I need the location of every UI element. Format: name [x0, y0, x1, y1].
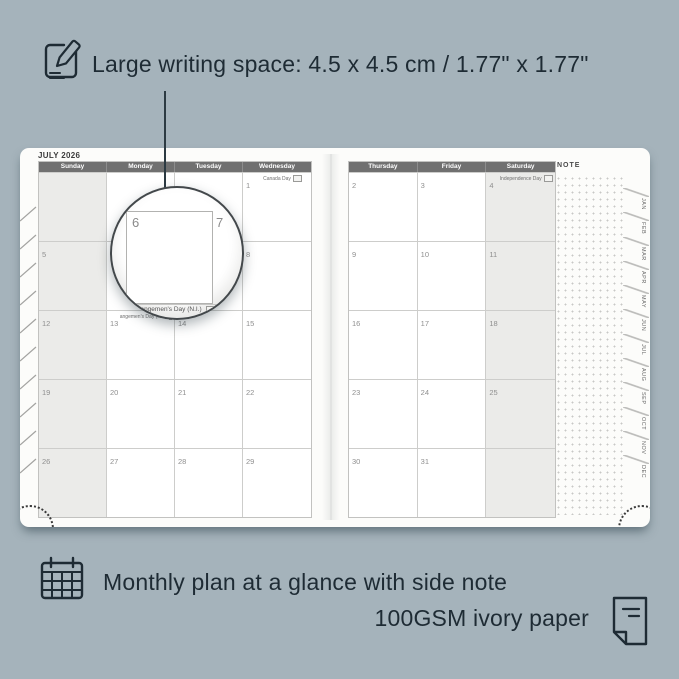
- calendar-cell: [486, 448, 555, 517]
- bottom-annotation-text-1: Monthly plan at a glance with side note: [103, 569, 507, 596]
- date-label: 3: [421, 181, 425, 190]
- calendar-cell: 18: [486, 310, 555, 379]
- date-label: 13: [110, 319, 118, 328]
- month-tab-label: MAY: [640, 295, 646, 308]
- date-label: 20: [110, 388, 118, 397]
- date-label: 8: [246, 250, 250, 259]
- calendar-cell: 2: [349, 172, 418, 241]
- page-gutter: [322, 154, 340, 520]
- date-label: 21: [178, 388, 186, 397]
- date-label: 10: [421, 250, 429, 259]
- month-title: JULY 2026: [38, 151, 80, 160]
- date-label: 31: [421, 457, 429, 466]
- day-header-row: ThursdayFridaySaturday: [349, 162, 555, 172]
- product-image: Large writing space: 4.5 x 4.5 cm / 1.77…: [0, 0, 679, 679]
- GB-flag-icon: [206, 306, 216, 313]
- calendar-cell: 28: [175, 448, 243, 517]
- calendar-cell: 5: [39, 241, 107, 310]
- month-tab-label: JUL: [640, 344, 646, 355]
- calendar-cell: 13Orangemen's Day (N.I.): [107, 310, 175, 379]
- calendar-cell: 25: [486, 379, 555, 448]
- month-tab-aug: AUG: [623, 358, 649, 382]
- calendar-cell: 26: [39, 448, 107, 517]
- calendar-cell: 20: [107, 379, 175, 448]
- planner-spread: JULY 2026 SundayMondayTuesdayWednesday1C…: [20, 148, 650, 527]
- magnifier-holiday-row: 13 Orangemen's Day (N.I.): [122, 306, 216, 313]
- date-label: 19: [42, 388, 50, 397]
- calendar-cell: [39, 172, 107, 241]
- date-label: 28: [178, 457, 186, 466]
- date-label: 25: [489, 388, 497, 397]
- calendar-cell: 23: [349, 379, 418, 448]
- date-label: 13: [122, 306, 129, 313]
- date-label: 15: [246, 319, 254, 328]
- calendar-cell: 24: [418, 379, 487, 448]
- date-label: 29: [246, 457, 254, 466]
- date-label: 16: [352, 319, 360, 328]
- month-tab-mar: MAR: [623, 237, 649, 261]
- day-header: Wednesday: [243, 162, 311, 172]
- calendar-cell: 11: [486, 241, 555, 310]
- month-tab-jul: JUL: [623, 334, 649, 358]
- day-header: Saturday: [486, 162, 555, 172]
- month-tab-may: MAY: [623, 285, 649, 309]
- month-tab-dec: DEC: [623, 455, 649, 479]
- calendar-grid-icon: [38, 556, 86, 602]
- month-tab-jan: JAN: [623, 188, 649, 212]
- calendar-cell: 22: [243, 379, 311, 448]
- date-label: 14: [178, 319, 186, 328]
- month-tab-label: APR: [640, 271, 646, 284]
- calendar-body: 234Independence Day 91011161718232425303…: [349, 172, 555, 517]
- note-dot-grid: [555, 175, 627, 515]
- grid-line: [112, 304, 242, 305]
- month-tab-label: NOV: [640, 441, 646, 454]
- date-label: 7: [216, 215, 223, 230]
- top-annotation-text: Large writing space: 4.5 x 4.5 cm / 1.77…: [92, 51, 589, 78]
- bottom-annotation-text-2: 100GSM ivory paper: [374, 605, 589, 632]
- holiday-label: Orangemen's Day (N.I.): [133, 306, 201, 313]
- calendar-cell: 31: [418, 448, 487, 517]
- pencil-note-icon: [40, 33, 84, 85]
- calendar-cell: 1Canada Day: [243, 172, 311, 241]
- calendar-cell: 4Independence Day: [486, 172, 555, 241]
- day-header: Sunday: [39, 162, 107, 172]
- calendar-cell: 12: [39, 310, 107, 379]
- holiday-label: Canada Day: [256, 175, 309, 182]
- US-flag-icon: [544, 175, 553, 182]
- date-label: 17: [421, 319, 429, 328]
- date-label: 23: [352, 388, 360, 397]
- month-tab-strip: JANFEBMARAPRMAYJUNJULAUGSEPOCTNOVDEC: [623, 188, 649, 480]
- month-tab-label: MAR: [640, 247, 646, 261]
- date-label: 27: [110, 457, 118, 466]
- date-label: 9: [352, 250, 356, 259]
- calendar-cell: 19: [39, 379, 107, 448]
- calendar-cell: 14: [175, 310, 243, 379]
- page-edge-hatch: [20, 203, 37, 483]
- calendar-right-page: ThursdayFridaySaturday234Independence Da…: [348, 161, 556, 518]
- pointer-line: [164, 91, 166, 188]
- month-tab-sep: SEP: [623, 382, 649, 406]
- month-tab-feb: FEB: [623, 212, 649, 236]
- paper-sheet-icon: [611, 595, 649, 647]
- calendar-cell: 21: [175, 379, 243, 448]
- month-tab-label: FEB: [640, 222, 646, 234]
- date-label: 12: [42, 319, 50, 328]
- date-label: 18: [489, 319, 497, 328]
- day-header: Thursday: [349, 162, 418, 172]
- date-label: 26: [42, 457, 50, 466]
- date-label: 6: [132, 215, 139, 230]
- month-tab-label: OCT: [640, 417, 646, 430]
- date-label: 11: [489, 250, 497, 259]
- date-label: 30: [352, 457, 360, 466]
- calendar-cell: 3: [418, 172, 487, 241]
- month-tab-label: JAN: [640, 198, 646, 210]
- note-label: NOTE: [557, 162, 580, 169]
- calendar-cell: 29: [243, 448, 311, 517]
- month-tab-label: DEC: [640, 465, 646, 478]
- date-label: 4: [489, 181, 493, 190]
- month-tab-label: SEP: [640, 392, 646, 405]
- month-tab-oct: OCT: [623, 407, 649, 431]
- calendar-cell: 9: [349, 241, 418, 310]
- date-label: 1: [246, 181, 250, 190]
- magnifier-circle: 6 7 13 Orangemen's Day (N.I.): [110, 186, 244, 320]
- date-label: 24: [421, 388, 429, 397]
- day-header: Friday: [418, 162, 487, 172]
- day-header: Tuesday: [175, 162, 243, 172]
- calendar-cell: 27: [107, 448, 175, 517]
- month-tab-nov: NOV: [623, 431, 649, 455]
- month-tab-label: JUN: [640, 319, 646, 331]
- calendar-cell: 17: [418, 310, 487, 379]
- CA-flag-icon: [293, 175, 302, 182]
- month-tab-apr: APR: [623, 261, 649, 285]
- calendar-cell: 30: [349, 448, 418, 517]
- date-label: 22: [246, 388, 254, 397]
- calendar-cell: 10: [418, 241, 487, 310]
- calendar-cell: 16: [349, 310, 418, 379]
- calendar-cell: 15: [243, 310, 311, 379]
- date-label: 5: [42, 250, 46, 259]
- holiday-label: Independence Day: [499, 175, 553, 182]
- date-label: 2: [352, 181, 356, 190]
- calendar-cell: 8: [243, 241, 311, 310]
- month-tab-label: AUG: [640, 368, 646, 381]
- month-tab-jun: JUN: [623, 309, 649, 333]
- day-header-row: SundayMondayTuesdayWednesday: [39, 162, 311, 172]
